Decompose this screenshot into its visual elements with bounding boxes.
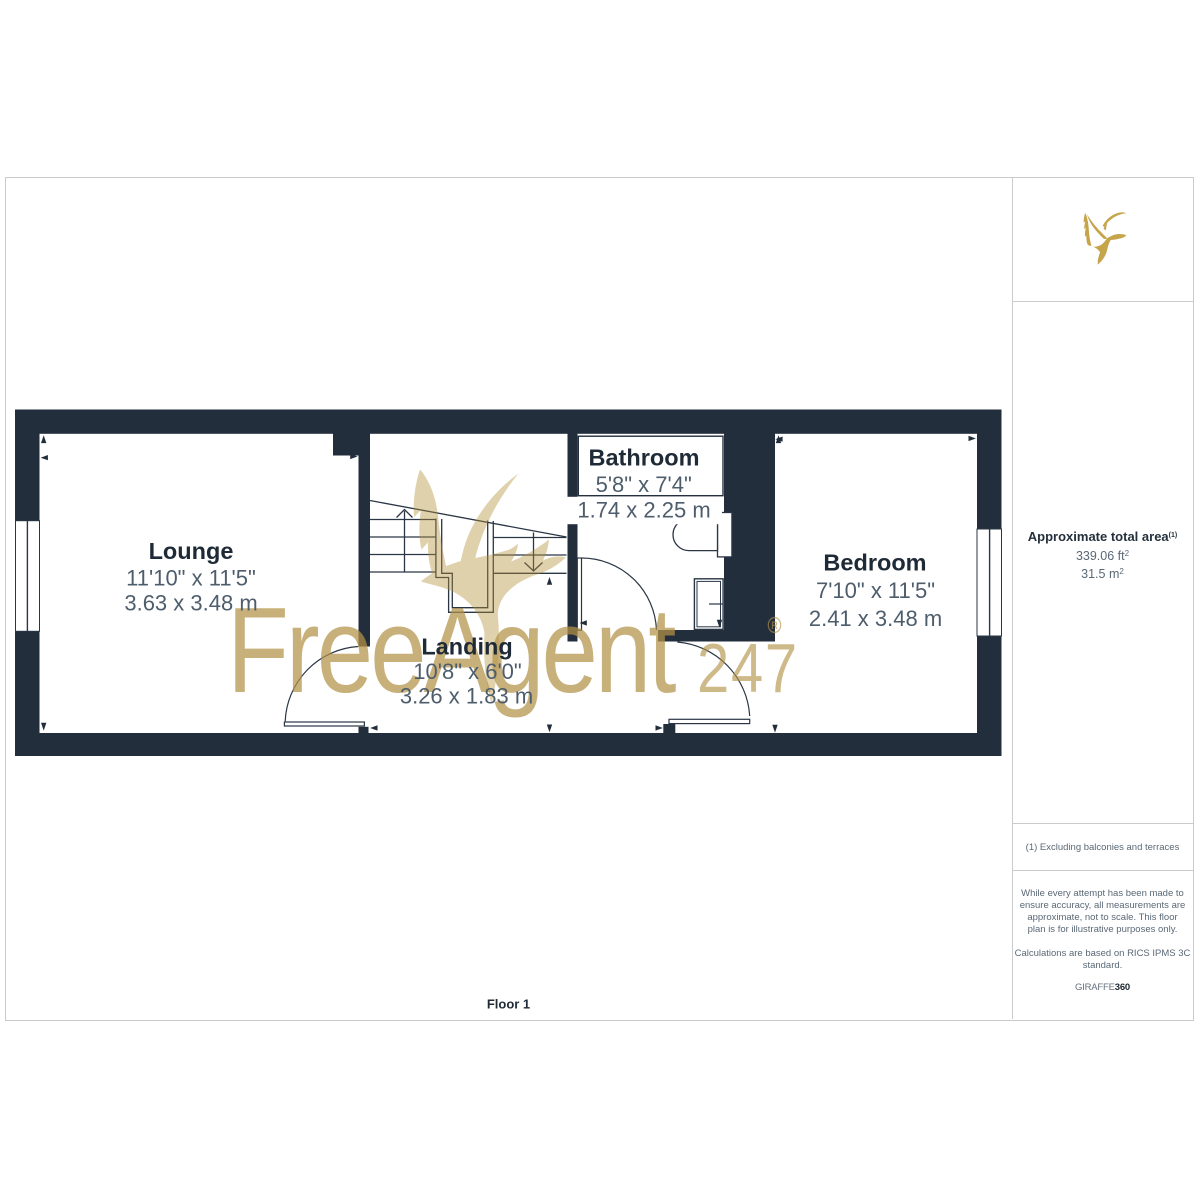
svg-text:2.41 x 3.48 m: 2.41 x 3.48 m xyxy=(809,606,942,631)
svg-text:10'8" x 6'0": 10'8" x 6'0" xyxy=(413,659,521,684)
svg-text:3.63 x 3.48 m: 3.63 x 3.48 m xyxy=(124,591,257,616)
svg-text:Lounge: Lounge xyxy=(149,538,234,564)
svg-text:247: 247 xyxy=(697,629,799,707)
svg-text:11'10" x 11'5": 11'10" x 11'5" xyxy=(126,566,256,591)
svg-text:7'10" x 11'5": 7'10" x 11'5" xyxy=(816,578,935,603)
svg-text:1.74 x 2.25 m: 1.74 x 2.25 m xyxy=(577,498,710,523)
svg-text:3.26 x 1.83 m: 3.26 x 1.83 m xyxy=(400,683,533,708)
svg-text:Landing: Landing xyxy=(421,634,512,660)
svg-text:Bathroom: Bathroom xyxy=(589,445,700,471)
svg-text:Floor 1: Floor 1 xyxy=(487,997,530,1012)
svg-text:5'8" x 7'4": 5'8" x 7'4" xyxy=(596,472,692,497)
svg-text:Bedroom: Bedroom xyxy=(823,550,926,576)
svg-text:R: R xyxy=(771,620,777,632)
